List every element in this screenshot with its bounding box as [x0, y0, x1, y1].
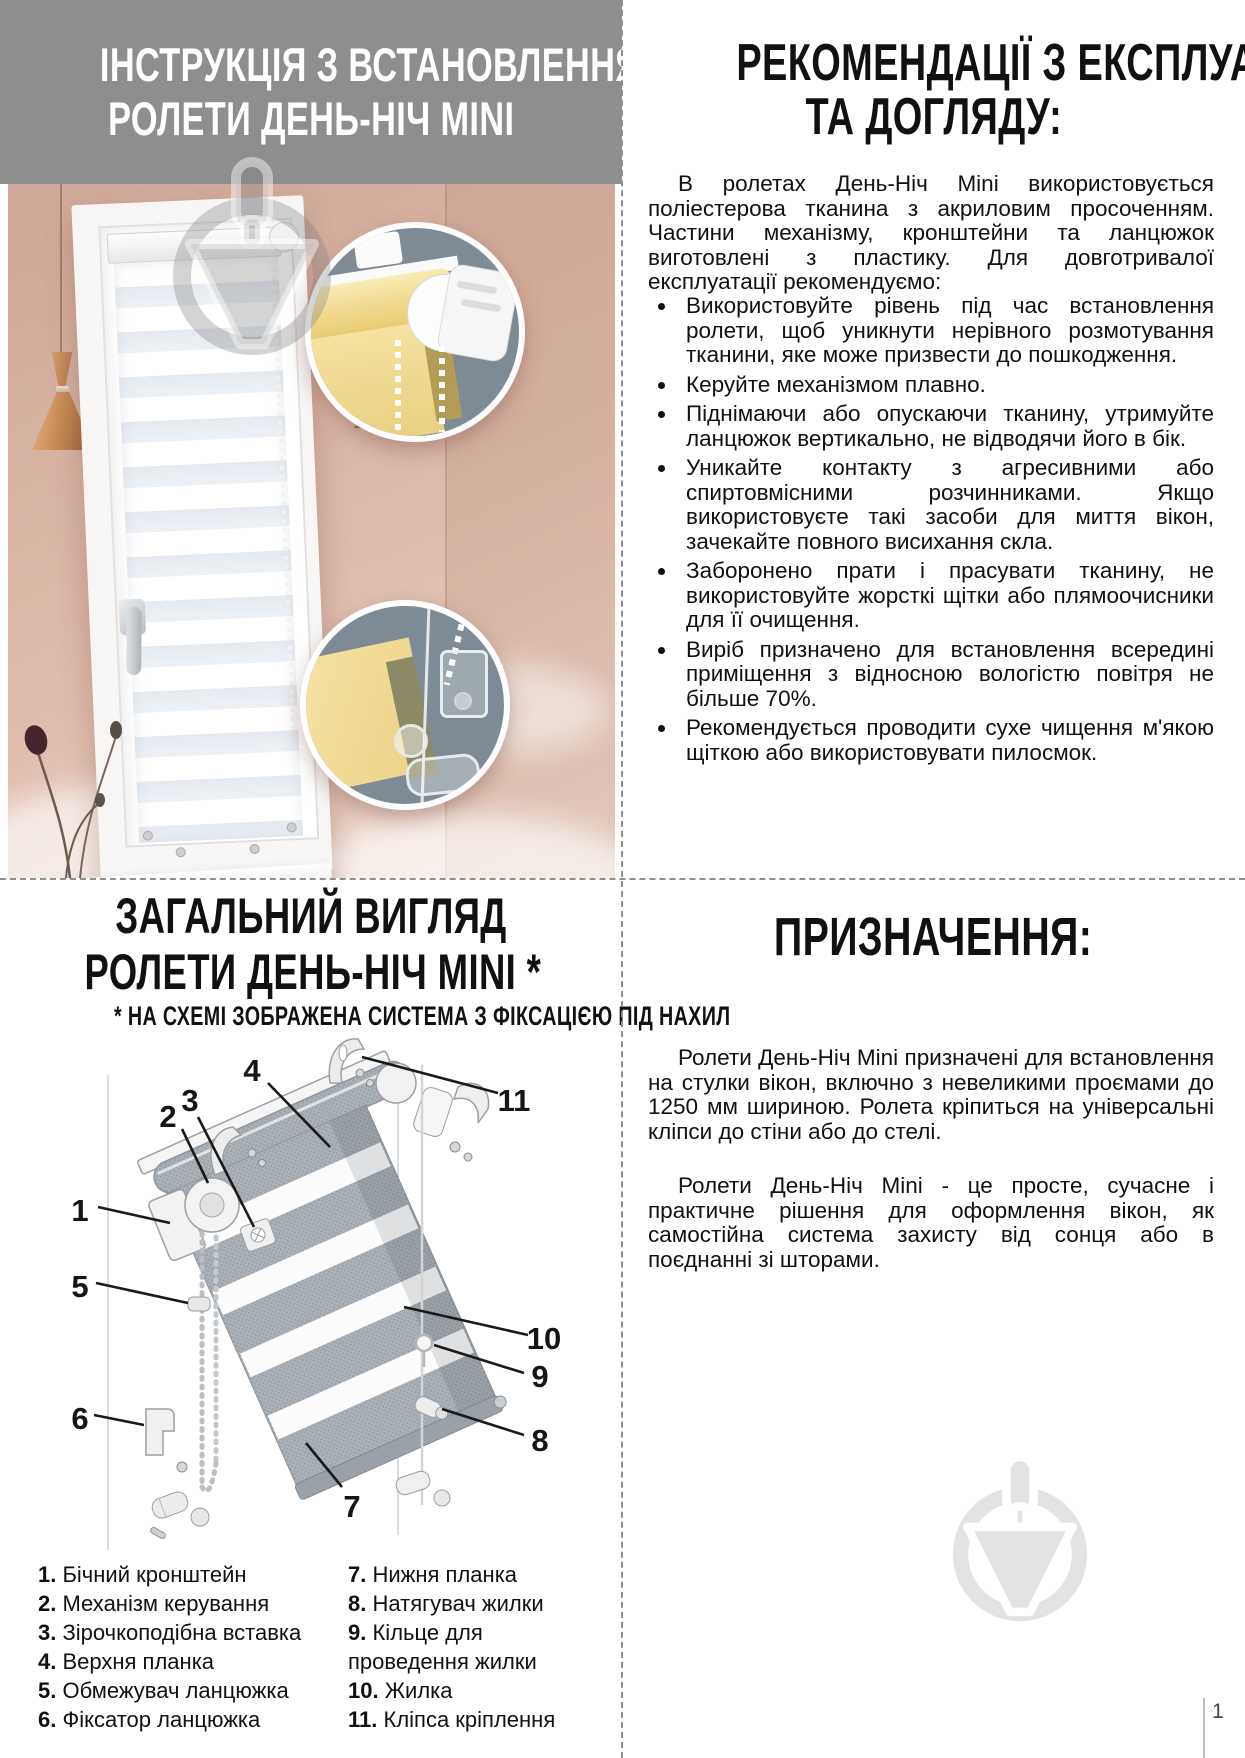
inset2-ring-disc — [394, 724, 428, 758]
part-item: 1. Бічний кронштейн — [38, 1560, 333, 1589]
part-item: 4. Верхня планка — [38, 1647, 333, 1676]
instruction-page: ІНСТРУКЦІЯ З ВСТАНОВЛЕННЯ РОЛЕТИ ДЕНЬ-НІ… — [0, 0, 1245, 1758]
callout-2: 2 — [159, 1099, 176, 1134]
chain-loop — [202, 1463, 216, 1491]
leader-line-5 — [96, 1283, 188, 1303]
recommendations-intro: В ролетах День-Ніч Mini використовується… — [648, 172, 1214, 295]
callout-3: 3 — [181, 1083, 198, 1118]
inset-tensioner-closeup — [300, 600, 510, 810]
recommendations-title: РЕКОМЕНДАЦІЇ З ЕКСПЛУАТАЦІЇ ТА ДОГЛЯДУ: — [622, 36, 1245, 144]
brand-watermark-icon — [152, 156, 352, 370]
screw — [464, 1153, 472, 1161]
blind-diagram: 1 2 3 4 5 6 7 8 9 10 11 — [30, 1035, 590, 1555]
part-number: 8. — [348, 1591, 366, 1616]
inset1-chain-strand — [439, 346, 445, 432]
screw — [248, 1149, 256, 1157]
screw — [367, 1080, 374, 1087]
purpose-title-text: ПРИЗНАЧЕННЯ: — [774, 908, 1092, 966]
leader-line-6 — [94, 1415, 144, 1425]
callout-10: 10 — [527, 1321, 561, 1356]
inset1-chain-strand — [395, 340, 401, 432]
fixator-cylinder — [150, 1489, 191, 1520]
purpose-paragraph-2: Ролети День-Ніч Mini - це просте, сучасн… — [648, 1174, 1214, 1272]
part-label: Нижня планка — [372, 1562, 517, 1587]
list-item: Виріб призначено для встановлення всеред… — [648, 638, 1214, 712]
install-title-line1: ІНСТРУКЦІЯ З ВСТАНОВЛЕННЯ — [100, 38, 640, 92]
part-label: Обмежувач ланцюжка — [62, 1678, 288, 1703]
part-item: 7. Нижня планка — [348, 1560, 606, 1589]
parts-list-right: 7. Нижня планка 8. Натягувач жилки 9. Кі… — [348, 1560, 606, 1734]
part-item: 5. Обмежувач ланцюжка — [38, 1676, 333, 1705]
part-number: 9. — [348, 1620, 366, 1645]
part-item: 10. Жилка — [348, 1676, 606, 1705]
screw-head — [434, 1490, 450, 1506]
blind-screw — [249, 844, 259, 854]
chain-limiter — [188, 1297, 210, 1311]
part-label: Кільце для проведення жилки — [348, 1620, 537, 1674]
page-number-rule — [1203, 1698, 1205, 1758]
recommendations-title-line1: РЕКОМЕНДАЦІЇ З ЕКСПЛУАТАЦІЇ — [736, 36, 1245, 90]
page-number: 1 — [1212, 1700, 1224, 1724]
part-label: Механізм керування — [62, 1591, 269, 1616]
install-title-line2: РОЛЕТИ ДЕНЬ-НІЧ MINI — [108, 92, 514, 146]
overview-title-line1: ЗАГАЛЬНИЙ ВИГЛЯД — [115, 888, 506, 944]
list-item: Уникайте контакту з агресивними або спир… — [648, 456, 1214, 554]
callout-6: 6 — [71, 1401, 88, 1436]
inset1-tab — [353, 231, 403, 269]
mechanism-hub — [200, 1193, 224, 1217]
part-number: 6. — [38, 1707, 56, 1732]
list-item: Піднімаючи або опускаючи тканину, утриму… — [648, 402, 1214, 451]
part-number: 1. — [38, 1562, 56, 1587]
part-number: 4. — [38, 1649, 56, 1674]
callout-9: 9 — [531, 1359, 548, 1394]
overview-title-line2: РОЛЕТИ ДЕНЬ-НІЧ MINI * — [84, 944, 541, 1000]
part-item: 3. Зірочкоподібна вставка — [38, 1618, 333, 1647]
part-item: 8. Натягувач жилки — [348, 1589, 606, 1618]
callout-7: 7 — [343, 1489, 360, 1524]
screw — [450, 1142, 460, 1152]
inset2-screw — [454, 692, 472, 710]
screw — [259, 1160, 266, 1167]
part-item: 6. Фіксатор ланцюжка — [38, 1705, 333, 1734]
list-item: Керуйте механізмом плавно. — [648, 373, 1214, 398]
fabric-panel-group — [137, 1045, 550, 1505]
clip-slot — [339, 1045, 347, 1061]
part-label: Кліпса кріплення — [384, 1707, 556, 1732]
part-item: 9. Кільце для проведення жилки — [348, 1618, 606, 1676]
small-screw — [150, 1526, 167, 1539]
recommendations-title-line2: ТА ДОГЛЯДУ: — [805, 90, 1062, 144]
part-item: 2. Механізм керування — [38, 1589, 333, 1618]
callout-4: 4 — [243, 1053, 261, 1088]
recommendations-list: Використовуйте рівень під час встановлен… — [648, 294, 1214, 770]
part-label: Зірочкоподібна вставка — [62, 1620, 301, 1645]
part-label: Бічний кронштейн — [62, 1562, 246, 1587]
install-title: ІНСТРУКЦІЯ З ВСТАНОВЛЕННЯ РОЛЕТИ ДЕНЬ-НІ… — [0, 0, 622, 146]
pendant-lamp-top — [46, 352, 78, 388]
part-number: 11. — [348, 1707, 377, 1732]
inset1-bracket — [436, 263, 521, 364]
lamp-cord — [60, 184, 62, 356]
part-number: 5. — [38, 1678, 56, 1703]
purpose-paragraph-1: Ролети День-Ніч Mini призначені для вста… — [648, 1046, 1214, 1144]
part-label: Верхня планка — [62, 1649, 214, 1674]
parts-list-left: 1. Бічний кронштейн 2. Механізм керуванн… — [38, 1560, 333, 1734]
callout-1: 1 — [71, 1193, 88, 1228]
dried-branch — [8, 624, 218, 878]
callout-5: 5 — [71, 1269, 88, 1304]
brand-logo-icon — [935, 1452, 1105, 1634]
screw — [356, 1069, 364, 1077]
screw-head — [191, 1508, 209, 1526]
purpose-title: ПРИЗНАЧЕННЯ: — [622, 908, 1245, 966]
part-item: 11. Кліпса кріплення — [348, 1705, 606, 1734]
tensioner-cylinder — [394, 1469, 432, 1497]
list-item: Рекомендується проводити сухе чищення м'… — [648, 716, 1214, 765]
callout-8: 8 — [531, 1423, 548, 1458]
part-number: 2. — [38, 1591, 56, 1616]
list-item: Заборонено прати і прасувати тканину, не… — [648, 559, 1214, 633]
part-number: 3. — [38, 1620, 56, 1645]
part-label: Фіксатор ланцюжка — [62, 1707, 260, 1732]
horizontal-divider — [0, 878, 1245, 880]
part-label: Жилка — [385, 1678, 453, 1703]
callout-11: 11 — [498, 1083, 531, 1118]
screw — [177, 1462, 187, 1472]
chain-fixator — [146, 1409, 174, 1455]
part-number: 10. — [348, 1678, 379, 1703]
overview-title: ЗАГАЛЬНИЙ ВИГЛЯД РОЛЕТИ ДЕНЬ-НІЧ MINI * … — [0, 888, 622, 1032]
part-number: 7. — [348, 1562, 366, 1587]
list-item: Використовуйте рівень під час встановлен… — [648, 294, 1214, 368]
cord-ring — [416, 1335, 432, 1351]
right-bracket — [412, 1085, 455, 1138]
part-label: Натягувач жилки — [372, 1591, 543, 1616]
overview-subtitle: * НА СХЕМІ ЗОБРАЖЕНА СИСТЕМА З ФІКСАЦІЄЮ… — [114, 1000, 730, 1032]
